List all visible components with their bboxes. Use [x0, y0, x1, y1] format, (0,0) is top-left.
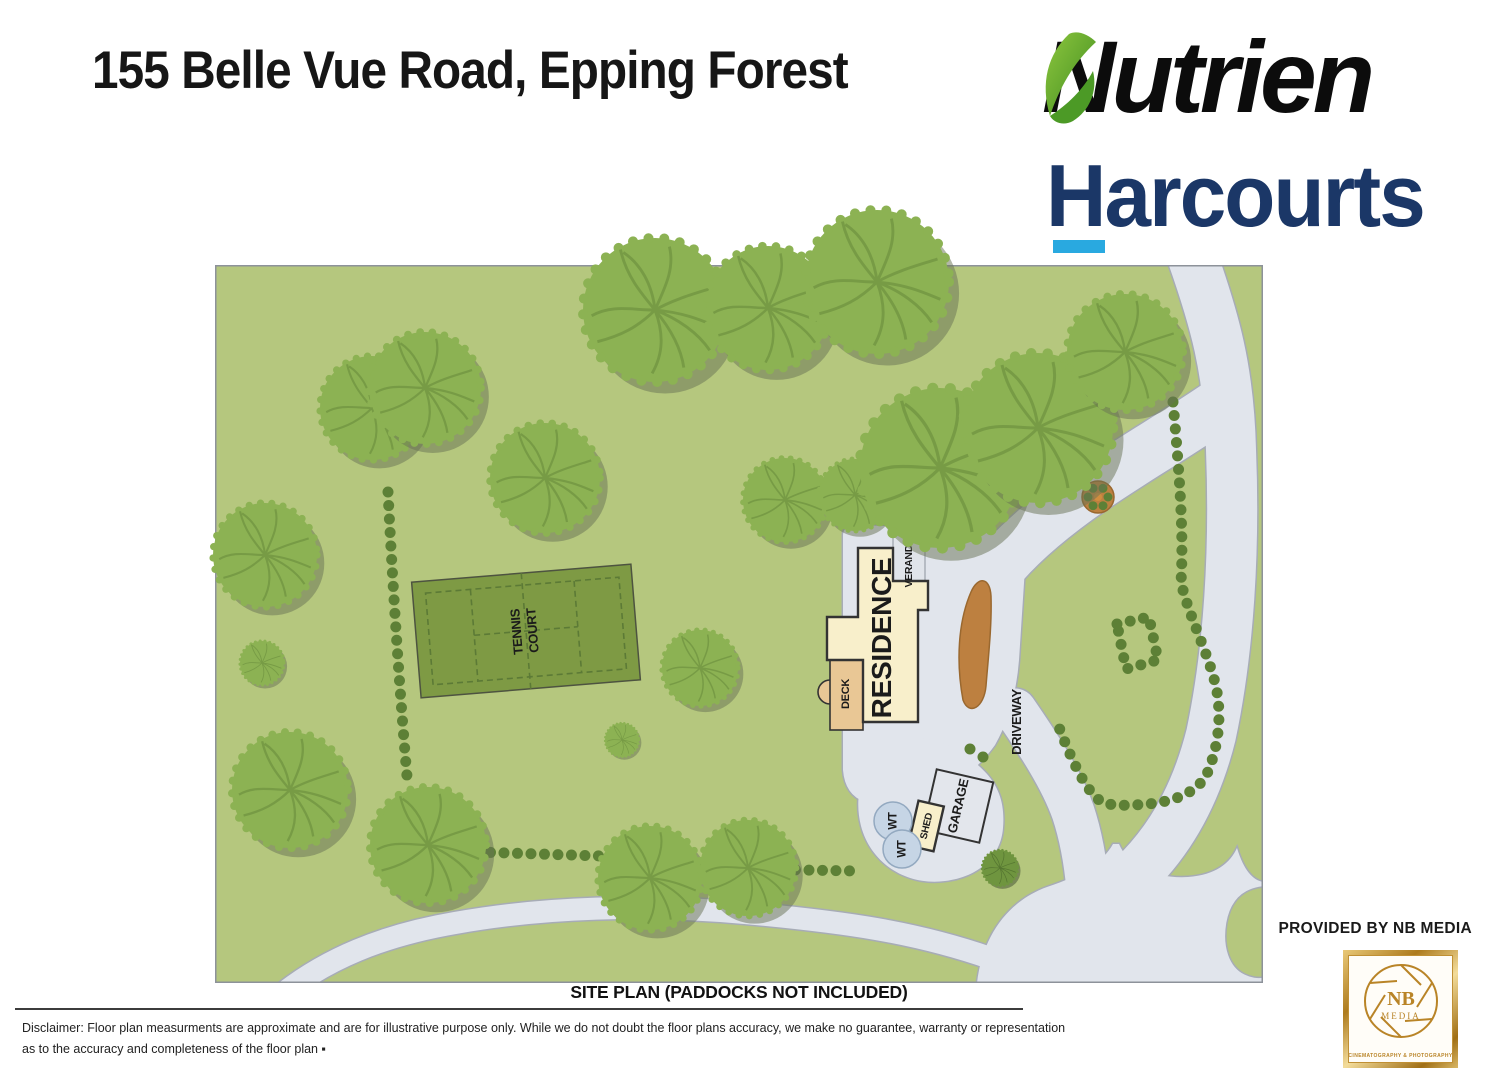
site-plan-caption: SITE PLAN (PADDOCKS NOT INCLUDED): [215, 982, 1263, 1003]
driveway-label: DRIVEWAY: [1009, 688, 1024, 754]
nb-logo-media: MEDIA: [1381, 1011, 1421, 1021]
nb-media-logo: NB MEDIA CINEMATOGRAPHY & PHOTOGRAPHY: [1343, 950, 1458, 1068]
nutrien-logo: Nutrien: [1042, 22, 1462, 140]
disclaimer: Disclaimer: Floor plan measurments are a…: [22, 1018, 1065, 1060]
site-plan-map: TENNIS COURT DRIVEWAY RESIDENCE VERANDAH…: [215, 195, 1263, 983]
provided-by-text: PROVIDED BY NB MEDIA: [1150, 920, 1472, 938]
deck-label: DECK: [840, 679, 852, 709]
disclaimer-line-1: Disclaimer: Floor plan measurments are a…: [22, 1018, 1065, 1039]
page-title: 155 Belle Vue Road, Epping Forest: [92, 40, 848, 101]
disclaimer-line-2: as to the accuracy and completeness of t…: [22, 1039, 1065, 1060]
nutrien-leaf-icon: [1038, 30, 1110, 130]
nb-logo-tagline: CINEMATOGRAPHY & PHOTOGRAPHY: [1348, 1053, 1452, 1059]
water-tank-label-2: WT: [897, 840, 909, 858]
residence-label: RESIDENCE: [866, 558, 897, 719]
divider-line: [15, 1008, 1023, 1010]
water-tank-label-1: WT: [888, 812, 900, 830]
nb-logo-nb: NB: [1387, 988, 1415, 1010]
aperture-icon: NB MEDIA: [1351, 959, 1451, 1047]
tennis-court: TENNIS COURT: [412, 564, 641, 698]
